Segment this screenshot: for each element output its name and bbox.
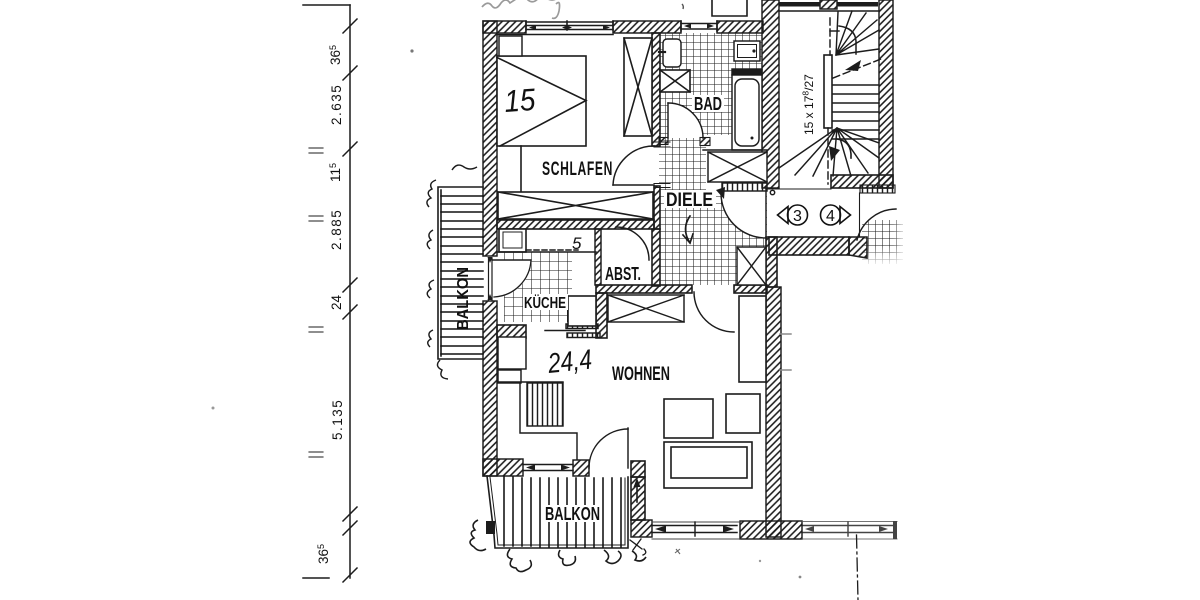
- svg-text:5: 5: [572, 234, 582, 253]
- svg-text:DIELE: DIELE: [666, 190, 713, 211]
- svg-text:BALKON: BALKON: [545, 504, 600, 524]
- svg-text:BAD: BAD: [694, 94, 722, 114]
- svg-text:15: 15: [503, 82, 537, 119]
- svg-text:24,4: 24,4: [546, 344, 594, 380]
- svg-text:3: 3: [793, 208, 802, 225]
- svg-text:KÜCHE: KÜCHE: [524, 293, 566, 312]
- svg-text:WOHNEN: WOHNEN: [612, 364, 670, 385]
- svg-text:ABST.: ABST.: [605, 264, 641, 284]
- svg-text:2.885: 2.885: [329, 209, 344, 250]
- svg-text:4: 4: [826, 208, 835, 225]
- svg-text:15 x 178/27: 15 x 178/27: [801, 74, 817, 135]
- svg-text:SCHLAFEN: SCHLAFEN: [542, 159, 613, 180]
- svg-text:5.135: 5.135: [330, 399, 345, 440]
- svg-text:BALKON: BALKON: [455, 267, 472, 330]
- svg-text:24: 24: [329, 294, 344, 310]
- svg-text:2.635: 2.635: [329, 84, 344, 125]
